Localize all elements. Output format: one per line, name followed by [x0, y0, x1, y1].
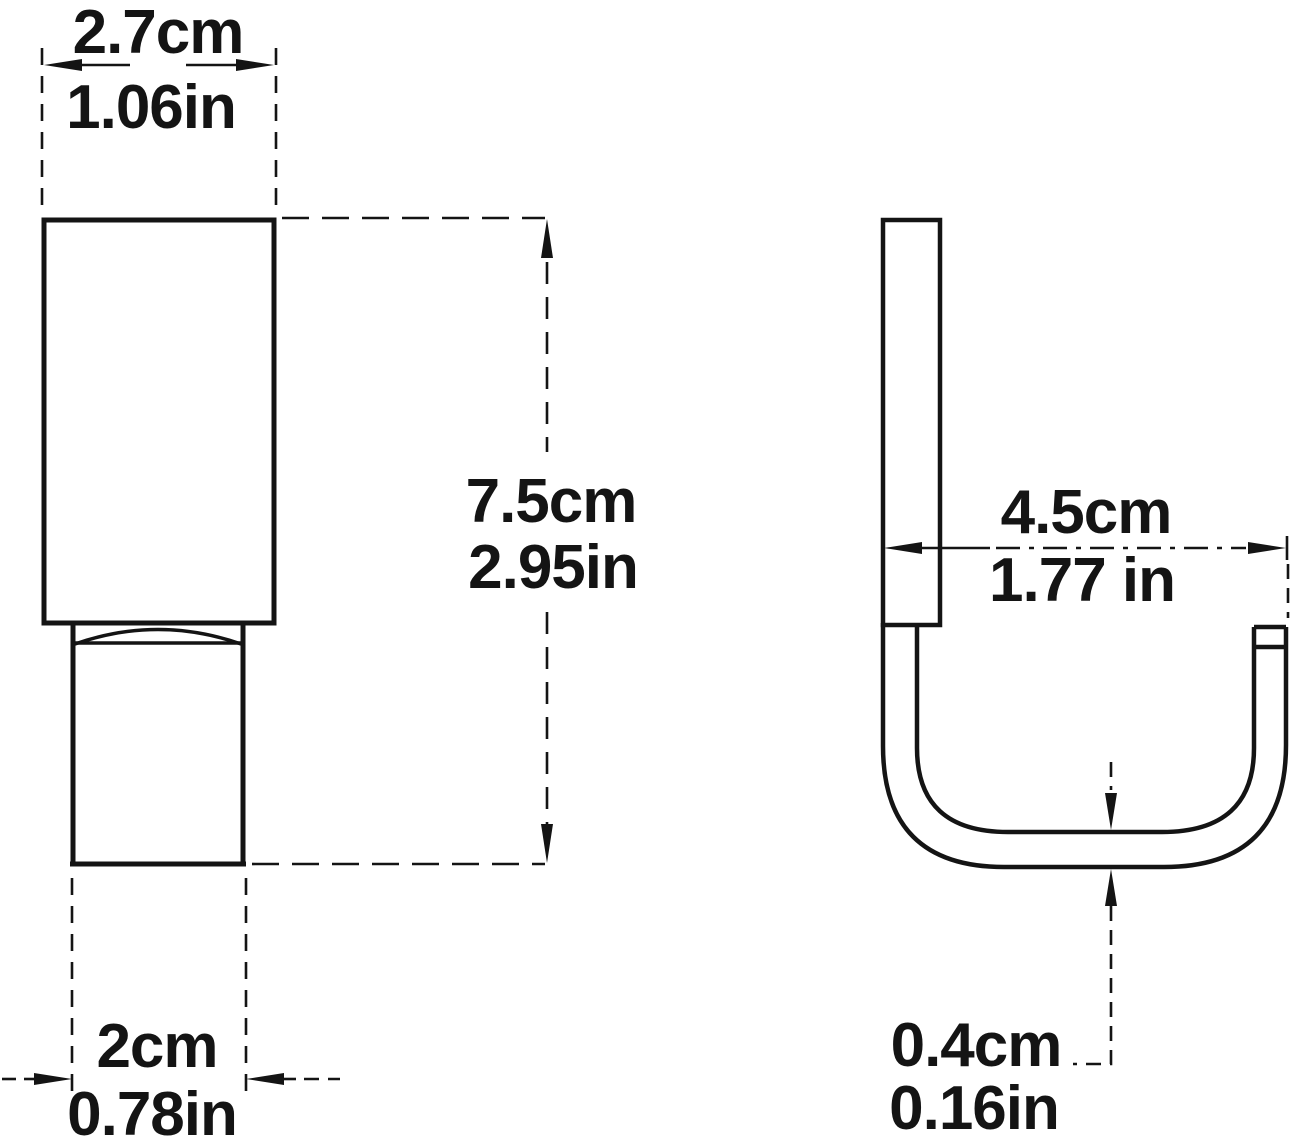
arrow-down-icon [541, 824, 553, 863]
arrow-left-icon [884, 542, 922, 554]
top-width-dimension: 2.7cm 1.06in [42, 0, 276, 214]
front-view [44, 220, 274, 864]
bottom-width-cm-label: 2cm [96, 1012, 217, 1081]
bottom-width-in-label: 0.78in [67, 1080, 237, 1139]
top-width-in-label: 1.06in [66, 73, 236, 142]
side-view-plate [883, 220, 940, 625]
thickness-cm-label: 0.4cm [891, 1011, 1062, 1080]
front-view-body [44, 220, 274, 623]
depth-in-label: 1.77 in [989, 546, 1175, 615]
bottom-width-dimension: 2cm 0.78in [2, 878, 340, 1139]
hook-curve-inner [917, 625, 1254, 832]
arrow-down-icon [1105, 793, 1117, 830]
height-dimension: 7.5cm 2.95in [252, 218, 638, 864]
depth-cm-label: 4.5cm [1001, 478, 1172, 547]
arrow-up-icon [1105, 869, 1117, 906]
thickness-dimension: 0.4cm 0.16in [889, 762, 1117, 1139]
arrow-left-icon [246, 1073, 284, 1085]
front-view-stem [70, 625, 246, 864]
arrow-right-icon [1248, 542, 1286, 554]
depth-dimension: 4.5cm 1.77 in [884, 478, 1288, 618]
thickness-in-label: 0.16in [889, 1074, 1059, 1139]
height-in-label: 2.95in [468, 533, 638, 602]
arrow-up-icon [541, 219, 553, 258]
hook-dimension-diagram: 2.7cm 1.06in 7.5cm 2.95in 2cm 0.78in [0, 0, 1294, 1139]
height-cm-label: 7.5cm [466, 467, 637, 536]
top-width-cm-label: 2.7cm [73, 0, 244, 67]
thickness-leader-line [1073, 906, 1111, 1064]
diagram-canvas: 2.7cm 1.06in 7.5cm 2.95in 2cm 0.78in [0, 0, 1294, 1139]
